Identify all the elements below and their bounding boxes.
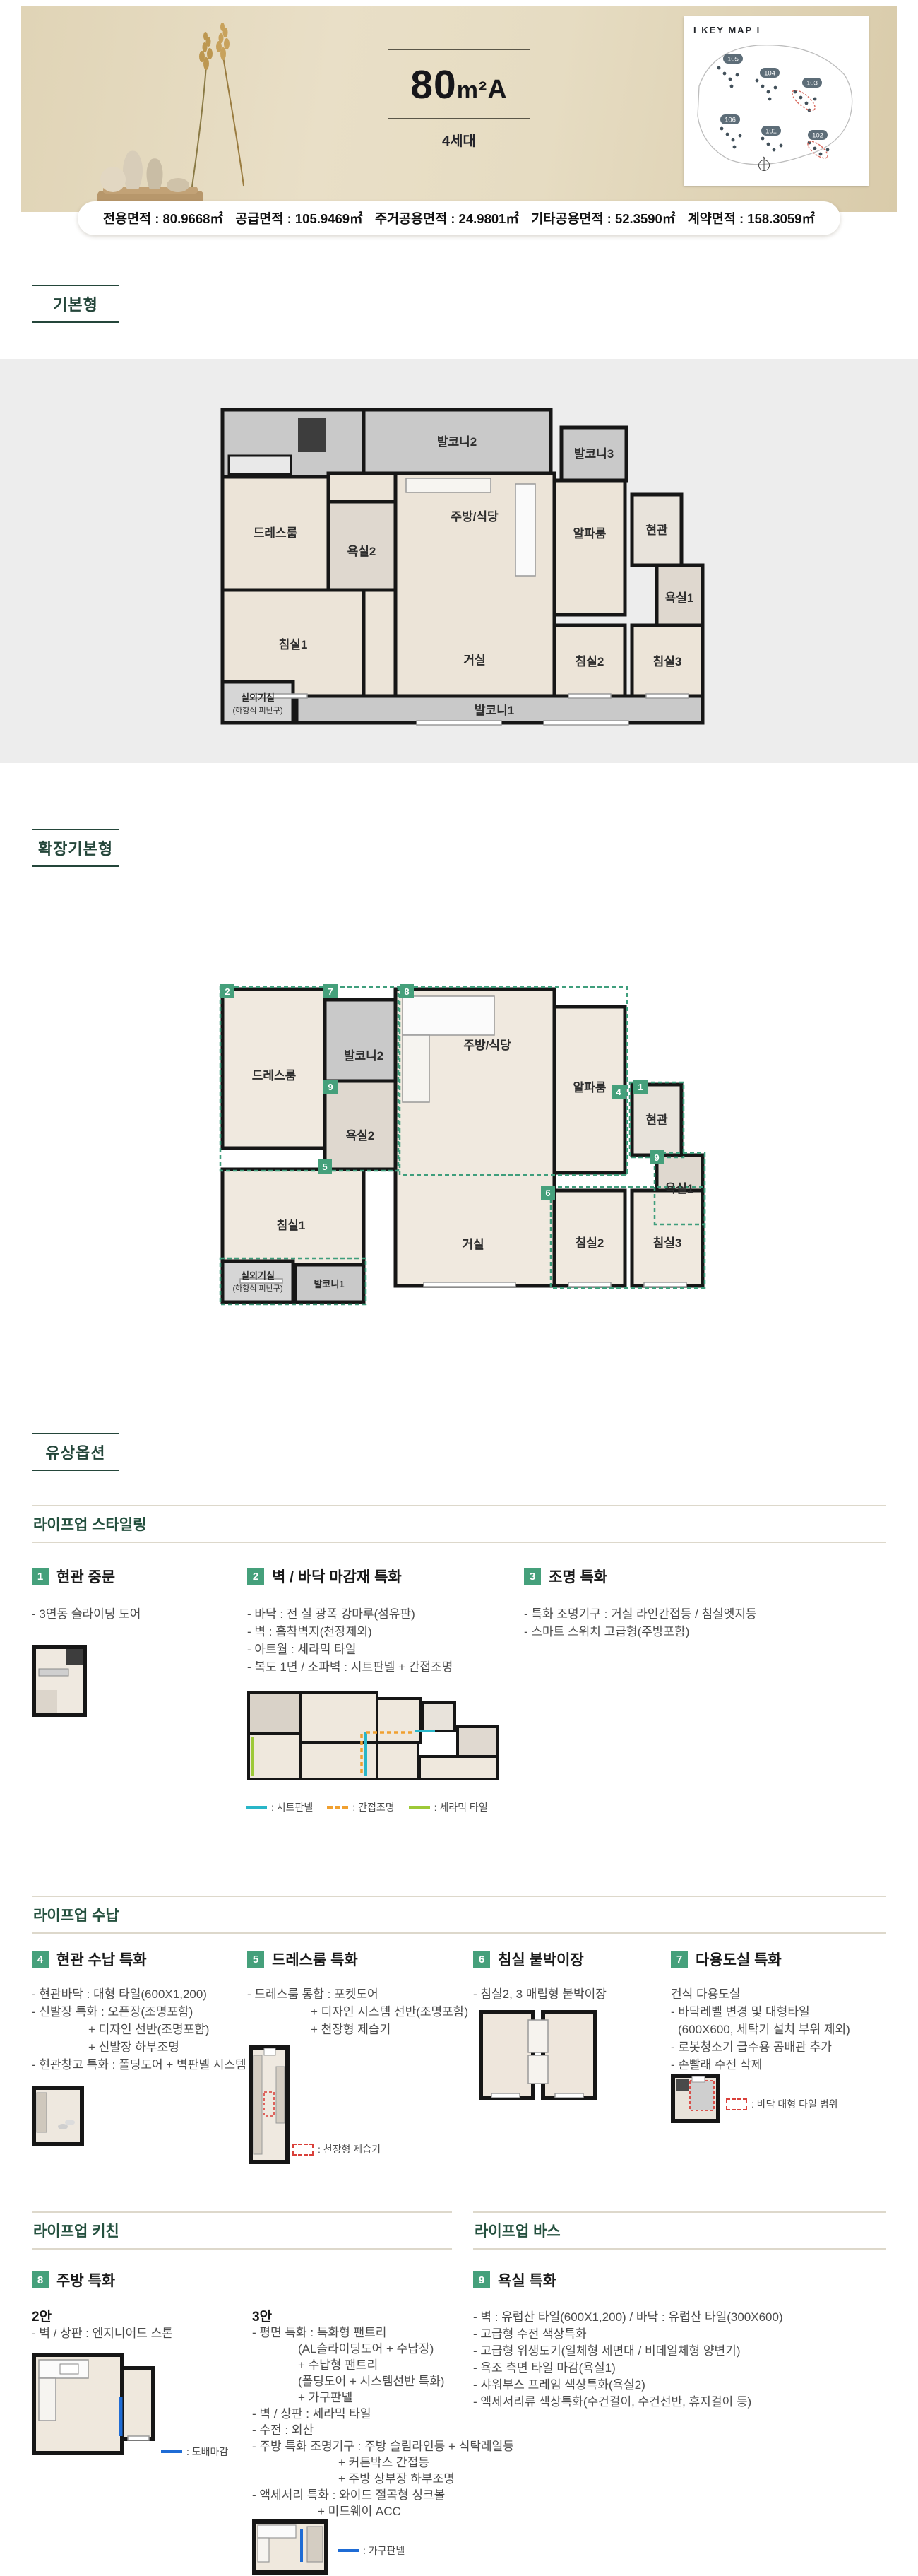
option-item-4-header: 4 현관 수납 특화 — [32, 1949, 147, 1970]
mini-plan-entry-door — [32, 1645, 87, 1717]
site-outline — [698, 45, 852, 165]
detail-line: - 액세서리류 색상특화(수건걸이, 수건선반, 휴지걸이 등) — [473, 2394, 783, 2411]
room-label-bed2: 침실2 — [576, 654, 604, 668]
room-label-outdoor: 실외기실 — [241, 692, 275, 703]
mini-plan-kitchen-opt2 — [32, 2353, 155, 2455]
detail-line: - 드레스룸 통합 : 포켓도어 — [247, 1985, 468, 2003]
option-item-8-header: 8 주방 특화 — [32, 2269, 115, 2291]
option-number-badge: 5 — [247, 1951, 264, 1968]
room-label-bath1: 욕실1 — [665, 1182, 694, 1195]
detail-line: - 침실2, 3 매립형 붙박이장 — [473, 1985, 607, 2003]
marker-9a: 9 — [328, 1082, 333, 1092]
option-number-badge: 4 — [32, 1951, 49, 1968]
option-item-9-header: 9 욕실 특화 — [473, 2269, 556, 2291]
option-item-2-header: 2 벽 / 바닥 마감재 특화 — [247, 1566, 402, 1587]
option-number-badge: 7 — [671, 1951, 688, 1968]
option-title: 침실 붙박이장 — [498, 1949, 584, 1970]
detail-line: + 미드웨이 ACC — [252, 2503, 514, 2519]
detail-line: - 3연동 슬라이딩 도어 — [32, 1605, 141, 1623]
option-item-1-details: - 3연동 슬라이딩 도어 — [32, 1605, 141, 1623]
detail-line: - 스마트 스위치 고급형(주방포함) — [524, 1623, 757, 1641]
detail-line: - 벽 : 흡착벽지(천장제외) — [247, 1623, 453, 1641]
marker-2: 2 — [225, 986, 229, 997]
blue-line-icon — [161, 2450, 182, 2453]
mini-plan-utility-room — [671, 2074, 720, 2123]
room-label-dressroom: 드레스룸 — [252, 1069, 297, 1082]
hero-decoration — [85, 13, 339, 212]
area-supply: 공급면적 : 105.9469㎡ — [235, 209, 362, 228]
blue-line-icon — [338, 2549, 359, 2552]
heading-lifeup-storage: 라이프업 수납 — [32, 1896, 886, 1934]
option-item-1-header: 1 현관 중문 — [32, 1566, 115, 1587]
option-title: 현관 수납 특화 — [56, 1949, 147, 1970]
detail-line: - 복도 1면 / 소파벽 : 시트판넬 + 간접조명 — [247, 1658, 453, 1676]
legend-indirect-light: : 간접조명 — [327, 1800, 394, 1814]
heading-lifeup-bath: 라이프업 바스 — [473, 2211, 886, 2250]
option-number-badge: 8 — [32, 2271, 49, 2288]
detail-line: - 손빨래 수전 삭제 — [671, 2056, 850, 2074]
room-label-bed2: 침실2 — [576, 1236, 604, 1250]
option-item-6-details: - 침실2, 3 매립형 붙박이장 — [473, 1985, 607, 2003]
room-alpha — [554, 480, 625, 615]
marker-1: 1 — [638, 1082, 643, 1092]
room-label-dressroom: 드레스룸 — [254, 526, 298, 540]
title-area-unit: m² — [457, 77, 488, 104]
area-info-bar: 전용면적 : 80.9668㎡ 공급면적 : 105.9469㎡ 주거공용면적 … — [78, 201, 840, 235]
hero-title-block: 80m²A 4세대 — [367, 49, 551, 150]
key-map-card: I KEY MAP I — [684, 16, 869, 186]
detail-line: - 액세서리 특화 : 와이드 절곡형 싱크볼 — [252, 2487, 514, 2503]
detail-line: - 고급형 수전 색상특화 — [473, 2326, 783, 2343]
detail-line: - 수전 : 외산 — [252, 2422, 514, 2438]
hero-banner: 80m²A 4세대 I KEY MAP I — [21, 6, 897, 212]
lime-line-icon — [409, 1806, 430, 1809]
room-label-bath1: 욕실1 — [665, 591, 694, 605]
option-item-5-header: 5 드레스룸 특화 — [247, 1949, 358, 1970]
detail-line: - 바닥레벨 변경 및 대형타일 — [671, 2003, 850, 2021]
red-dash-box-icon — [292, 2144, 314, 2156]
option-title: 욕실 특화 — [498, 2269, 556, 2291]
option-title: 조명 특화 — [549, 1566, 607, 1587]
room-label-balcony2: 발코니2 — [437, 435, 477, 449]
red-dash-box-icon — [726, 2098, 747, 2110]
detail-line: + 디자인 선반(조명포함) — [32, 2021, 272, 2038]
title-variant: A — [487, 75, 507, 105]
area-shared-other: 기타공용면적 : 52.3590㎡ — [531, 209, 675, 228]
option-number-badge: 6 — [473, 1951, 490, 1968]
room-label-bed1: 침실1 — [279, 637, 308, 651]
detail-line: + 신발장 하부조명 — [32, 2038, 272, 2056]
building-106: 106 — [725, 117, 736, 124]
marker-4: 4 — [616, 1087, 621, 1097]
detail-line: - 아트월 : 세라믹 타일 — [247, 1641, 453, 1658]
room-label-entrance: 현관 — [645, 1113, 668, 1127]
marker-5: 5 — [322, 1162, 327, 1172]
detail-line: - 신발장 특화 : 오픈장(조명포함) — [32, 2003, 272, 2021]
detail-line: - 특화 조명기구 : 거실 라인간접등 / 침실엣지등 — [524, 1605, 757, 1623]
orange-dash-icon — [327, 1806, 348, 1809]
option-number-badge: 3 — [524, 1568, 541, 1585]
option-title: 다용도실 특화 — [696, 1949, 782, 1970]
heading-lifeup-kitchen: 라이프업 키친 — [32, 2211, 452, 2250]
option-title: 주방 특화 — [56, 2269, 115, 2291]
unit-type-page: 80m²A 4세대 I KEY MAP I — [0, 0, 918, 2576]
legend-sheet-panel: : 시트판넬 — [246, 1800, 313, 1814]
floor-plan-extended: 2 7 8 9 5 4 1 9 6 드레스룸 발코니2 욕실2 주방/식당 알파… — [212, 979, 706, 1314]
detail-line: - 욕조 측면 타일 마감(욕실1) — [473, 2360, 783, 2377]
building-104: 104 — [764, 70, 775, 78]
mini-plan-finish-materials — [246, 1690, 503, 1783]
detail-line: - 샤워부스 프레임 색상특화(욕실2) — [473, 2377, 783, 2394]
room-label-balcony2: 발코니2 — [344, 1049, 383, 1063]
area-exclusive: 전용면적 : 80.9668㎡ — [103, 209, 223, 228]
dehumidifier-legend: : 천장형 제습기 — [292, 2142, 381, 2156]
option-item-7-details: 건식 다용도실 - 바닥레벨 변경 및 대형타일 (600X600, 세탁기 설… — [671, 1985, 850, 2074]
legend-ceramic-tile: : 세라믹 타일 — [409, 1800, 488, 1814]
mini-plan-entry-storage — [32, 2086, 84, 2146]
option-number-badge: 2 — [247, 1568, 264, 1585]
detail-line: + 주방 상부장 하부조명 — [252, 2471, 514, 2487]
detail-line: + 디자인 시스템 선반(조명포함) — [247, 2003, 468, 2021]
unit-count: 4세대 — [367, 129, 551, 150]
room-label-bath2: 욕실2 — [346, 1129, 375, 1142]
floor-plan-basic: 발코니2 발코니3 드레스룸 욕실2 주방/식당 알파룸 현관 욕실1 침실1 … — [212, 399, 706, 731]
marker-8: 8 — [404, 986, 409, 997]
option-number-badge: 9 — [473, 2271, 490, 2288]
marker-7: 7 — [328, 986, 333, 997]
teal-line-icon — [246, 1806, 267, 1809]
option-item-7-header: 7 다용도실 특화 — [671, 1949, 782, 1970]
detail-line: - 바닥 : 전 실 광폭 강마루(섬유판) — [247, 1605, 453, 1623]
option-item-5-details: - 드레스룸 통합 : 포켓도어 + 디자인 시스템 선반(조명포함) + 천장… — [247, 1985, 468, 2038]
room-label-kitchen: 주방/식당 — [451, 510, 499, 524]
option-item-6-header: 6 침실 붙박이장 — [473, 1949, 584, 1970]
heading-lifeup-styling: 라이프업 스타일링 — [32, 1505, 886, 1543]
option-item-3-header: 3 조명 특화 — [524, 1566, 607, 1587]
option-number-badge: 1 — [32, 1568, 49, 1585]
room-label-living: 거실 — [463, 654, 485, 667]
room-label-alpha: 알파룸 — [573, 1081, 607, 1094]
title-rule-bottom — [388, 118, 530, 119]
kitchen-option2-details: - 벽 / 상판 : 엔지니어드 스톤 — [32, 2324, 173, 2342]
room-label-bed3: 침실3 — [653, 654, 682, 668]
room-label-alpha: 알파룸 — [573, 527, 607, 540]
detail-line: (600X600, 세탁기 설치 부위 제외) — [671, 2021, 850, 2038]
option-item-2-details: - 바닥 : 전 실 광폭 강마루(섬유판) - 벽 : 흡착벽지(천장제외) … — [247, 1605, 453, 1676]
building-102: 102 — [812, 132, 823, 140]
finish-legend: : 시트판넬 : 간접조명 : 세라믹 타일 — [246, 1800, 488, 1814]
option-title: 현관 중문 — [56, 1566, 115, 1587]
building-101: 101 — [765, 128, 777, 136]
room-label-entrance: 현관 — [645, 524, 668, 537]
section-label-extended: 확장기본형 — [32, 829, 119, 867]
option-title: 드레스룸 특화 — [272, 1949, 358, 1970]
area-shared-residential: 주거공용면적 : 24.9801㎡ — [375, 209, 519, 228]
wheat-head-icon — [199, 32, 213, 70]
key-map-title: I KEY MAP I — [693, 25, 869, 35]
room-label-bath2: 욕실2 — [347, 545, 376, 558]
room-label-outdoor-sub: (하향식 피난구) — [232, 1283, 282, 1293]
room-label-living: 거실 — [462, 1238, 484, 1251]
room-label-bed1: 침실1 — [277, 1218, 306, 1232]
detail-line: - 현관바닥 : 대형 타일(600X1,200) — [32, 1985, 272, 2003]
room-label-bed3: 침실3 — [653, 1236, 682, 1250]
room-label-balcony3: 발코니3 — [574, 447, 614, 461]
mini-plan-builtin-closet — [479, 2010, 597, 2100]
room-label-balcony1: 발코니1 — [314, 1279, 344, 1289]
marker-6: 6 — [545, 1188, 550, 1198]
area-contract: 계약면적 : 158.3059㎡ — [688, 209, 815, 228]
detail-line: - 주방 특화 조명기구 : 주방 슬림라인등 + 식탁레일등 — [252, 2438, 514, 2454]
room-balcony2 — [325, 1000, 403, 1081]
detail-line: - 고급형 위생도기(일체형 세면대 / 비데일체형 양변기) — [473, 2343, 783, 2360]
option-item-9-details: - 벽 : 유럽산 타일(600X1,200) / 바닥 : 유럽산 타일(30… — [473, 2309, 783, 2411]
section-label-basic: 기본형 — [32, 285, 119, 323]
option-item-4-details: - 현관바닥 : 대형 타일(600X1,200) - 신발장 특화 : 오픈장… — [32, 1985, 272, 2074]
detail-line: - 벽 / 상판 : 엔지니어드 스톤 — [32, 2324, 173, 2342]
wallpaper-finish-legend: : 도배마감 — [161, 2445, 228, 2459]
large-tile-legend: : 바닥 대형 타일 범위 — [726, 2097, 838, 2111]
compass-north-label: N — [762, 156, 765, 161]
option-item-3-details: - 특화 조명기구 : 거실 라인간접등 / 침실엣지등 - 스마트 스위치 고… — [524, 1605, 757, 1641]
mini-plan-dressroom — [249, 2045, 290, 2164]
detail-line: + 커튼박스 간접등 — [252, 2454, 514, 2471]
wheat-head-icon — [216, 23, 229, 60]
detail-line: + 천장형 제습기 — [247, 2021, 468, 2038]
building-103: 103 — [806, 80, 818, 88]
room-label-kitchen: 주방/식당 — [463, 1039, 511, 1052]
room-label-outdoor: 실외기실 — [241, 1270, 275, 1281]
kitchen-option3-label: 3안 — [252, 2306, 272, 2325]
mini-plan-kitchen-opt3 — [252, 2519, 328, 2575]
kitchen-option2-label: 2안 — [32, 2306, 52, 2325]
detail-line: 건식 다용도실 — [671, 1985, 850, 2003]
key-map-diagram: 105 104 103 106 101 102 N — [691, 38, 860, 178]
option-title: 벽 / 바닥 마감재 특화 — [272, 1566, 402, 1587]
detail-line: - 현관창고 특화 : 폴딩도어 + 벽판넬 시스템 선반 — [32, 2056, 272, 2074]
detail-line: - 로봇청소기 급수용 공배관 추가 — [671, 2038, 850, 2056]
room-label-outdoor-sub: (하향식 피난구) — [232, 705, 282, 715]
room-bath2 — [325, 1081, 395, 1169]
room-label-balcony1: 발코니1 — [475, 704, 514, 717]
building-105: 105 — [727, 56, 739, 64]
page-title: 80m²A — [367, 61, 551, 108]
marker-9b: 9 — [654, 1152, 659, 1163]
section-label-paid-options: 유상옵션 — [32, 1433, 119, 1471]
detail-line: - 벽 : 유럽산 타일(600X1,200) / 바닥 : 유럽산 타일(30… — [473, 2309, 783, 2326]
furniture-panel-legend: : 가구판넬 — [338, 2543, 405, 2558]
title-rule-top — [388, 49, 530, 50]
title-area-number: 80 — [410, 62, 456, 107]
